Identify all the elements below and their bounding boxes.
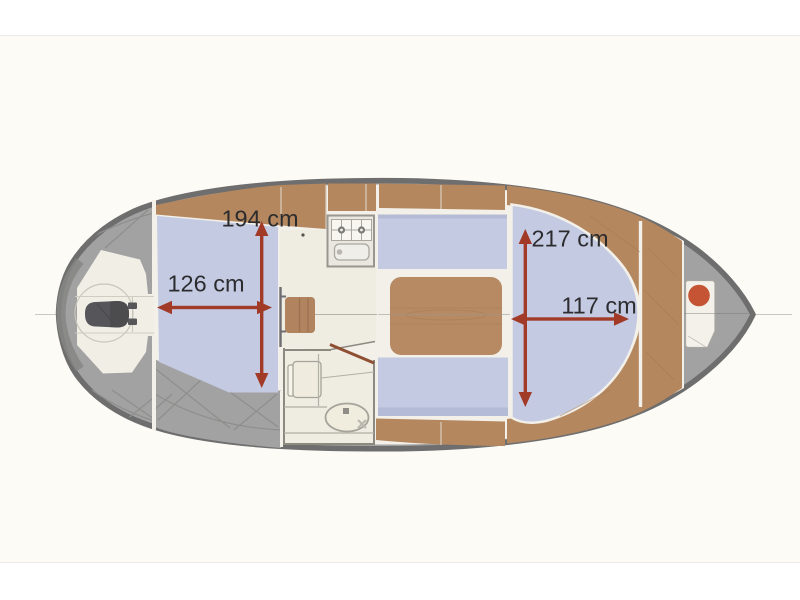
svg-text:117 cm: 117 cm — [561, 293, 636, 319]
svg-text:126 cm: 126 cm — [167, 271, 244, 297]
svg-text:194 cm: 194 cm — [221, 206, 298, 232]
svg-text:217 cm: 217 cm — [531, 226, 608, 252]
